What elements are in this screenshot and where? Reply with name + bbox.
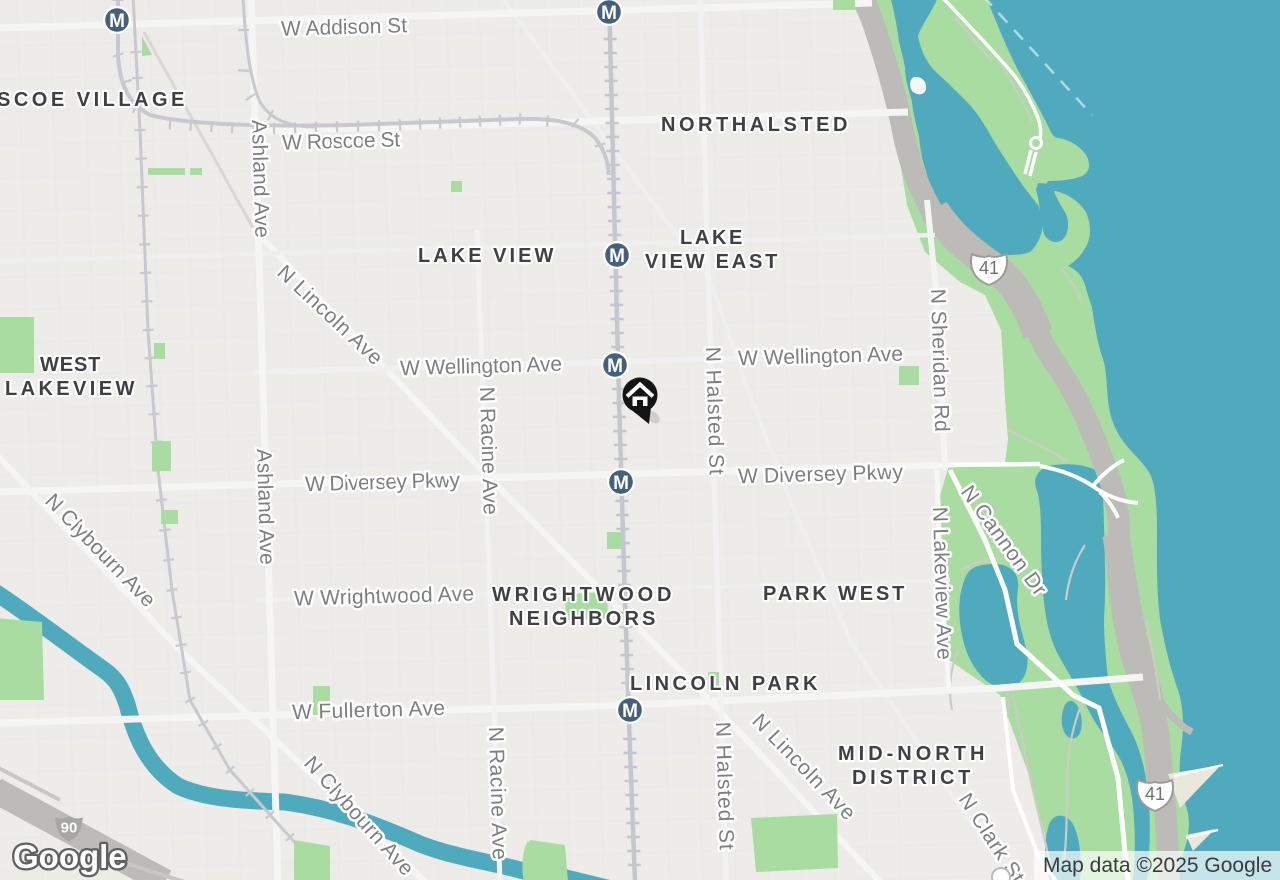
svg-text:NEIGHBORS: NEIGHBORS (509, 608, 658, 630)
svg-text:N Halsted St: N Halsted St (701, 346, 728, 475)
svg-text:LAKEVIEW: LAKEVIEW (5, 378, 137, 400)
svg-text:Ashland Ave: Ashland Ave (252, 448, 278, 565)
svg-text:M: M (109, 11, 125, 32)
svg-text:SCOE VILLAGE: SCOE VILLAGE (0, 89, 187, 111)
svg-text:41: 41 (979, 258, 999, 278)
svg-text:MID-NORTH: MID-NORTH (838, 743, 987, 765)
svg-text:W Wellington Ave: W Wellington Ave (738, 343, 904, 371)
svg-text:LINCOLN PARK: LINCOLN PARK (630, 673, 820, 695)
svg-text:M: M (607, 356, 623, 377)
svg-text:M: M (601, 3, 617, 24)
svg-text:Map data ©2025 Google: Map data ©2025 Google (1043, 854, 1272, 877)
svg-text:W Fullerton Ave: W Fullerton Ave (292, 697, 446, 724)
svg-text:M: M (613, 473, 629, 494)
svg-text:W Wellington Ave: W Wellington Ave (400, 353, 563, 381)
svg-text:41: 41 (1145, 784, 1165, 804)
svg-text:W Addison St: W Addison St (281, 14, 408, 41)
svg-text:WRIGHTWOOD: WRIGHTWOOD (492, 584, 674, 606)
svg-text:M: M (622, 701, 638, 722)
svg-text:N Racine Ave: N Racine Ave (475, 386, 502, 515)
svg-text:90: 90 (61, 820, 78, 837)
svg-text:W Diversey Pkwy: W Diversey Pkwy (738, 461, 904, 489)
svg-text:WEST: WEST (40, 354, 103, 376)
svg-text:M: M (609, 246, 625, 267)
svg-text:DISTRICT: DISTRICT (852, 767, 973, 789)
svg-text:N Racine Ave: N Racine Ave (484, 726, 511, 860)
svg-text:Google: Google (13, 838, 127, 875)
svg-text:W Diversey Pkwy: W Diversey Pkwy (305, 469, 461, 496)
svg-text:LAKE: LAKE (680, 227, 745, 249)
svg-text:N Lakeview Ave: N Lakeview Ave (928, 506, 956, 660)
svg-text:N Sheridan Rd: N Sheridan Rd (926, 288, 953, 432)
svg-text:Ashland Ave: Ashland Ave (247, 119, 273, 238)
svg-text:LAKE VIEW: LAKE VIEW (418, 245, 556, 267)
svg-text:PARK WEST: PARK WEST (763, 583, 907, 605)
svg-text:NORTHALSTED: NORTHALSTED (661, 114, 850, 136)
svg-text:W Roscoe St: W Roscoe St (282, 128, 401, 154)
svg-text:VIEW EAST: VIEW EAST (645, 251, 780, 273)
svg-text:N Halsted St: N Halsted St (711, 721, 738, 850)
